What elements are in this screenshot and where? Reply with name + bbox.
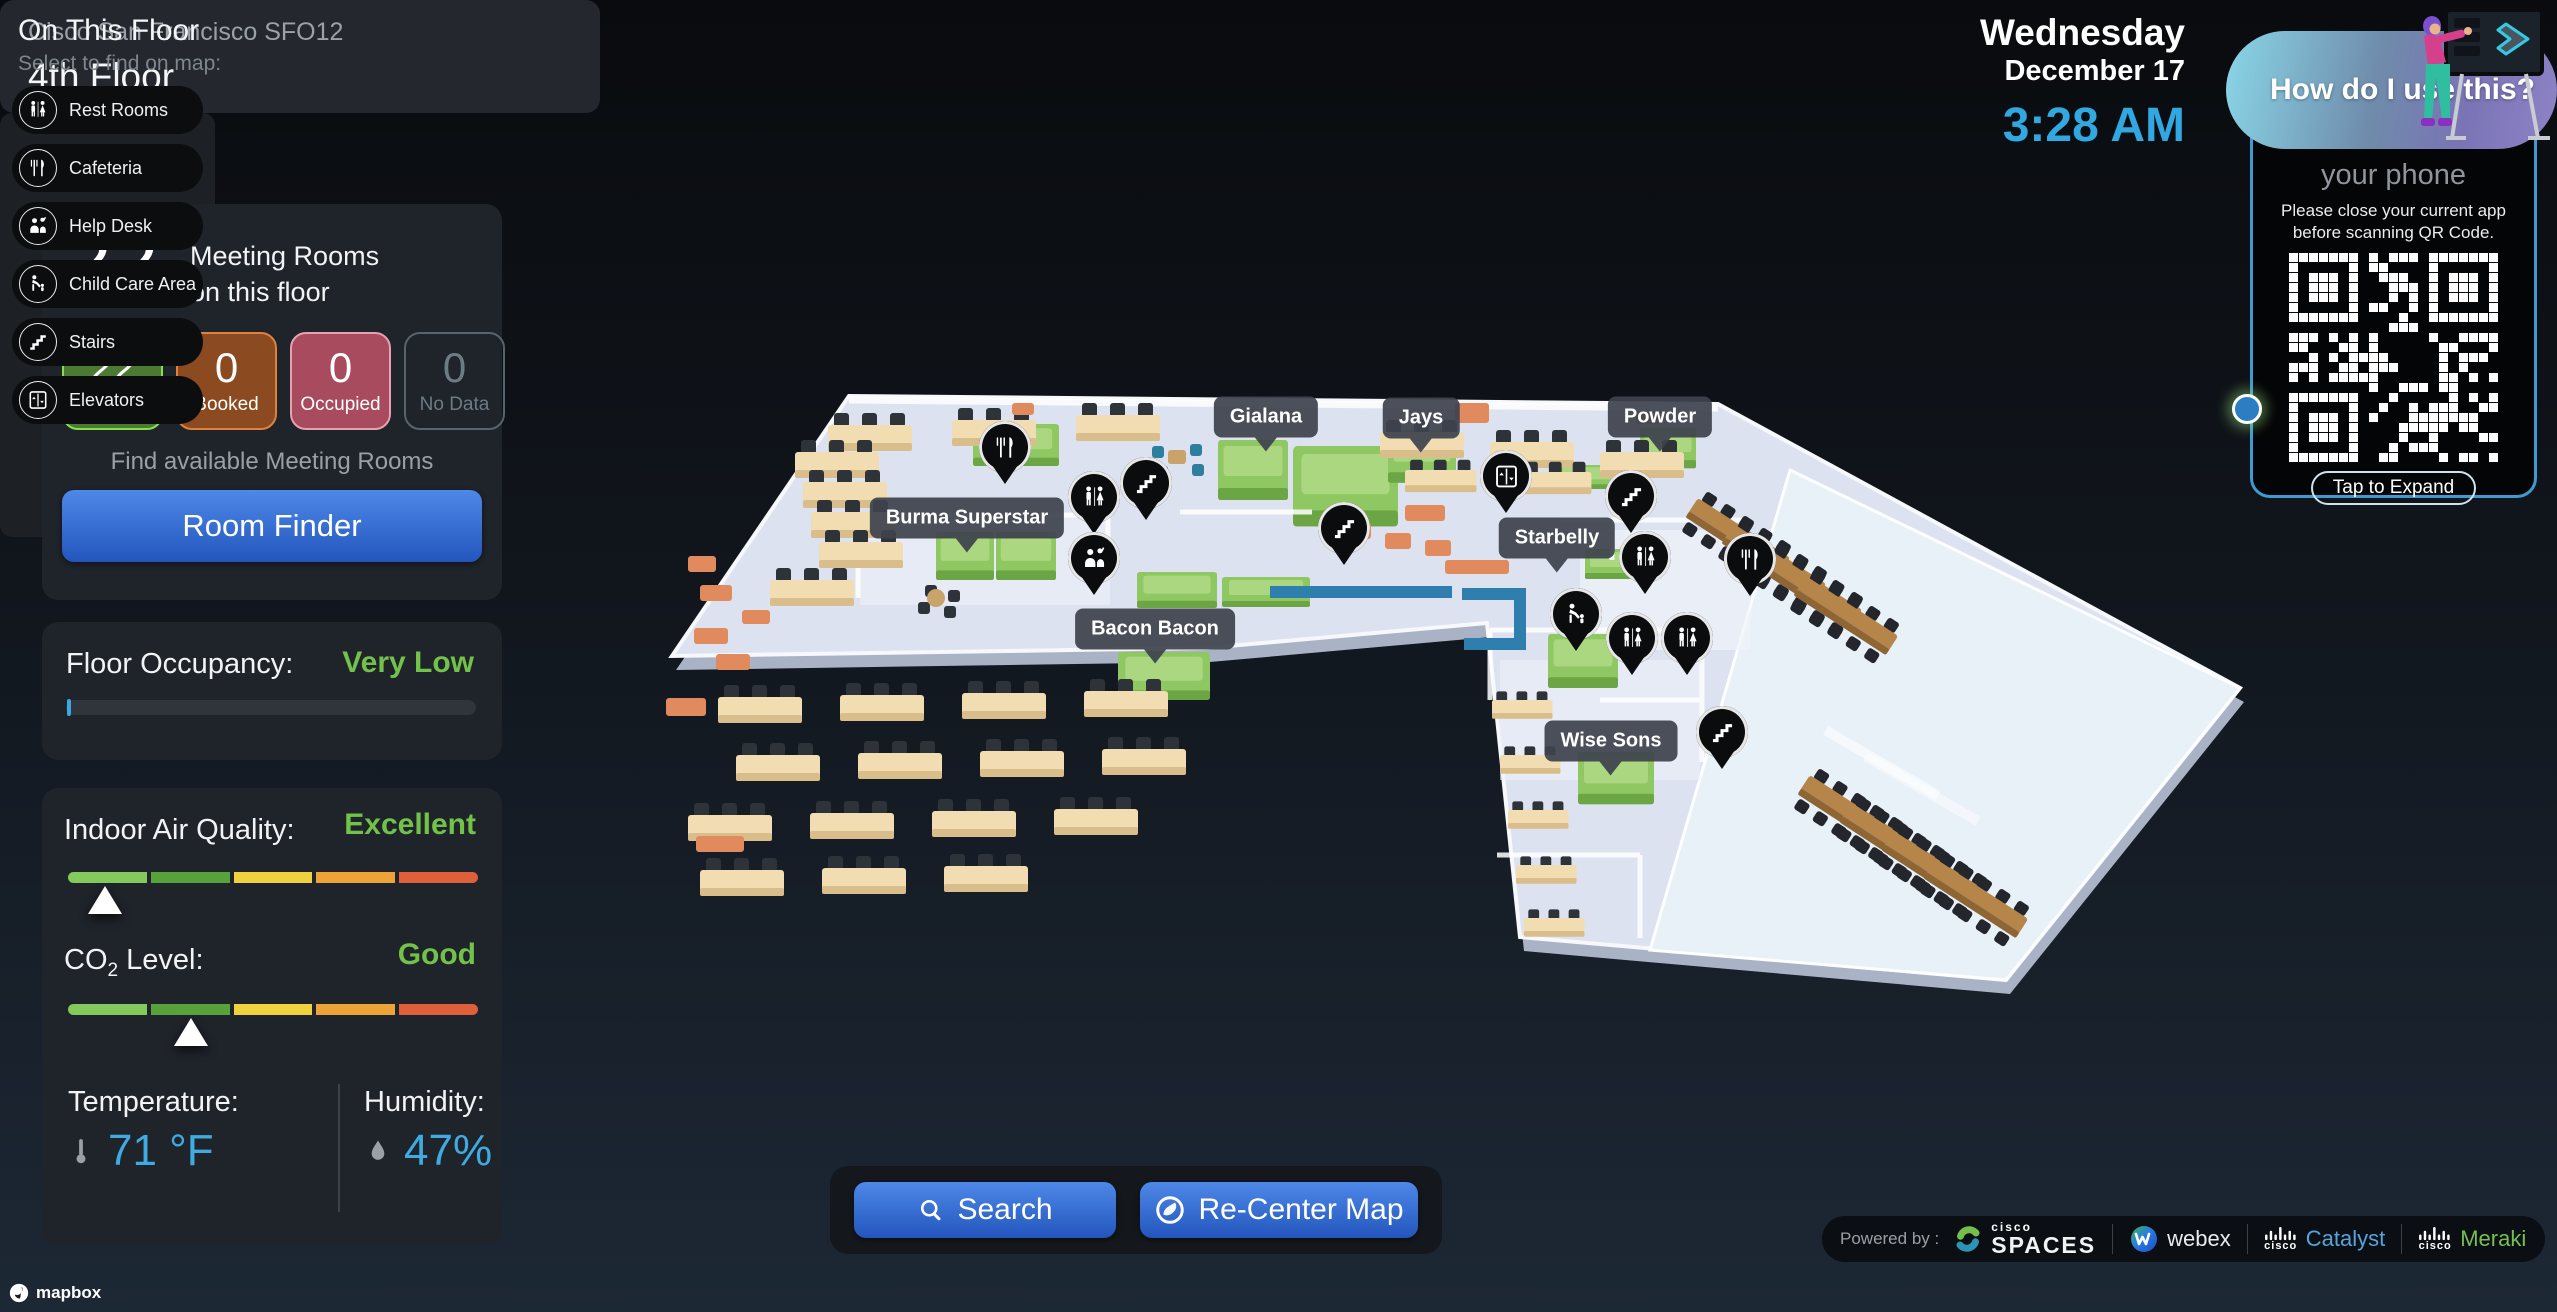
help-illustration <box>2388 6 2557 158</box>
qr-heading: your phone <box>2253 159 2534 192</box>
childcare-icon <box>1563 601 1590 628</box>
map-label-wise-sons: Wise Sons <box>1545 721 1678 762</box>
cafeteria-icon <box>992 434 1019 461</box>
map-pin-restroom[interactable] <box>1619 531 1671 583</box>
map-pin-restroom[interactable] <box>1606 612 1658 664</box>
qr-expand-button[interactable]: Tap to Expand <box>2311 471 2476 505</box>
map-pin-childcare[interactable] <box>1550 588 1602 640</box>
stairs-icon <box>1618 483 1645 510</box>
map-label-gialana: Gialana <box>1214 397 1318 438</box>
qr-instruction-line1: Please close your current app <box>2281 201 2506 220</box>
restroom-icon <box>1081 484 1108 511</box>
restroom-icon <box>1674 625 1701 652</box>
map-pin-elevator[interactable] <box>1480 450 1532 502</box>
cafeteria-icon <box>1737 546 1764 573</box>
map-label-burma-superstar: Burma Superstar <box>870 498 1064 539</box>
stairs-icon <box>1133 470 1160 497</box>
map-pin-helpdesk[interactable] <box>1068 532 1120 584</box>
map-pin-restroom[interactable] <box>1068 471 1120 523</box>
stairs-icon <box>1331 515 1358 542</box>
map-pin-stairs[interactable] <box>1318 502 1370 554</box>
qr-code <box>2288 252 2500 464</box>
elevator-icon <box>1493 463 1520 490</box>
stairs-icon <box>1709 719 1736 746</box>
map-pin-restroom[interactable] <box>1661 612 1713 664</box>
restroom-icon <box>1632 544 1659 571</box>
map-label-starbelly: Starbelly <box>1499 518 1615 559</box>
map-label-bacon-bacon: Bacon Bacon <box>1075 609 1235 650</box>
qr-instruction-line2: before scanning QR Code. <box>2293 223 2494 242</box>
map-pin-cafeteria[interactable] <box>979 421 1031 473</box>
map-label-powder: Powder <box>1608 397 1712 438</box>
restroom-icon <box>1619 625 1646 652</box>
map-pin-cafeteria[interactable] <box>1724 533 1776 585</box>
floor-map-3d[interactable] <box>0 0 2557 1312</box>
map-pin-stairs[interactable] <box>1605 470 1657 522</box>
qr-instruction: Please close your current app before sca… <box>2253 200 2534 244</box>
map-pin-stairs[interactable] <box>1120 457 1172 509</box>
helpdesk-icon <box>1081 545 1108 572</box>
map-label-jays: Jays <box>1383 398 1460 439</box>
qr-indicator-dot <box>2232 394 2262 424</box>
map-pin-stairs[interactable] <box>1696 706 1748 758</box>
